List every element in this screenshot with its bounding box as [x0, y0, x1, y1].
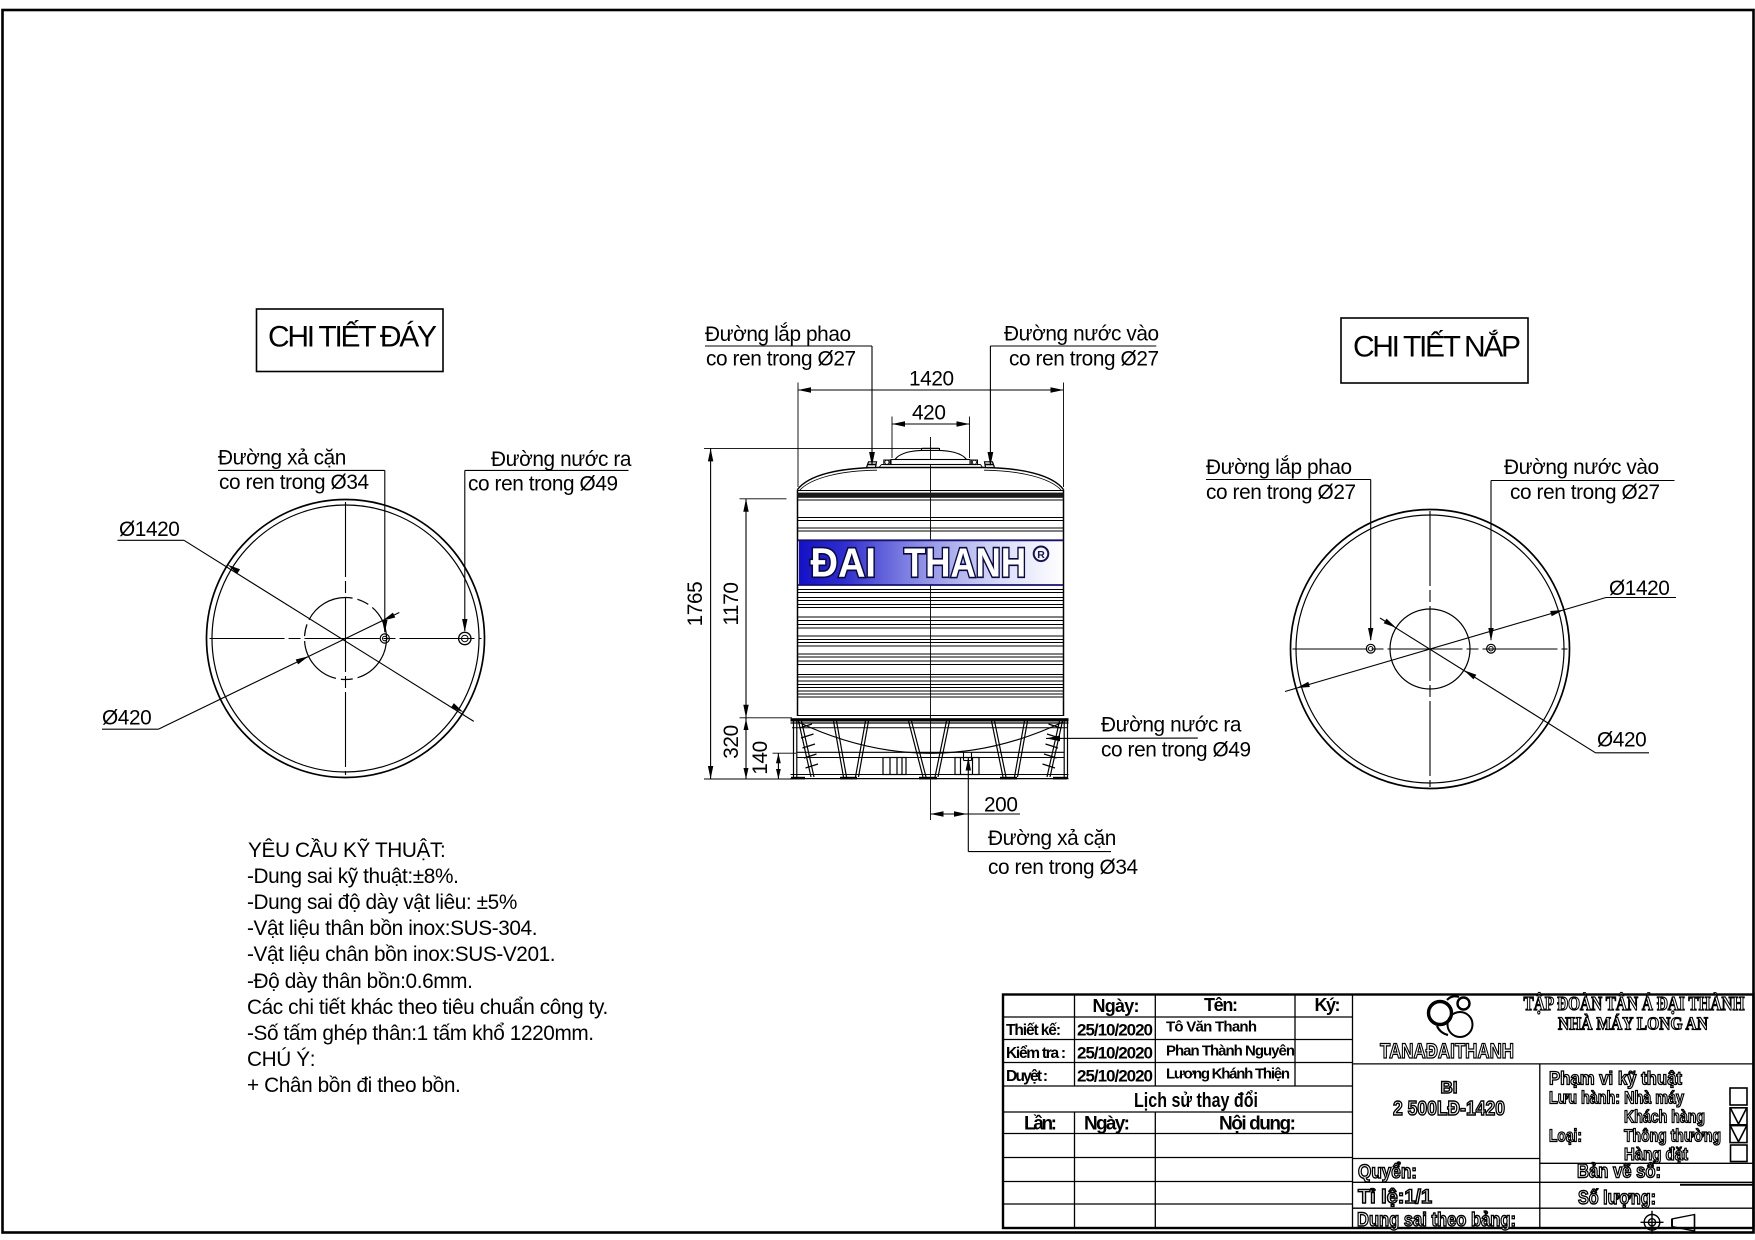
svg-text:-Vật liệu thân bồn inox:SUS-30: -Vật liệu thân bồn inox:SUS-304. — [247, 917, 537, 940]
svg-text:Phạm vi kỹ thuật: Phạm vi kỹ thuật — [1549, 1068, 1682, 1089]
svg-text:Đường nước vào: Đường nước vào — [1504, 456, 1659, 479]
svg-text:Đường nước vào: Đường nước vào — [1004, 323, 1159, 346]
svg-text:TẬP ĐOÀN TÂN Á ĐẠI THÀNH: TẬP ĐOÀN TÂN Á ĐẠI THÀNH — [1524, 993, 1745, 1015]
svg-text:Nội dung:: Nội dung: — [1219, 1114, 1296, 1135]
svg-text:320: 320 — [720, 725, 743, 759]
svg-text:Phan Thành Nguyên: Phan Thành Nguyên — [1166, 1043, 1295, 1060]
svg-text:CHI TIẾT ĐÁY: CHI TIẾT ĐÁY — [268, 320, 437, 354]
svg-text:CHI TIẾT NẮP: CHI TIẾT NẮP — [1353, 330, 1521, 364]
svg-text:Số lượng:: Số lượng: — [1578, 1187, 1656, 1209]
svg-text:-Số tấm ghép thân:1 tấm khổ 12: -Số tấm ghép thân:1 tấm khổ 1220mm. — [247, 1022, 594, 1045]
svg-text:YÊU CẦU KỸ THUẬT:: YÊU CẦU KỸ THUẬT: — [248, 838, 445, 862]
svg-text:Đường nước ra: Đường nước ra — [491, 448, 632, 471]
svg-text:THANH: THANH — [904, 540, 1026, 586]
svg-text:Ngày:: Ngày: — [1084, 1114, 1130, 1135]
svg-text:2 500LĐ-1420: 2 500LĐ-1420 — [1393, 1098, 1505, 1120]
svg-text:1420: 1420 — [909, 368, 954, 391]
svg-text:25/10/2020: 25/10/2020 — [1077, 1021, 1153, 1040]
svg-text:Ø420: Ø420 — [1597, 729, 1646, 752]
svg-text:Các chi tiết khác theo tiêu ch: Các chi tiết khác theo tiêu chuẩn công t… — [247, 996, 608, 1019]
svg-text:-Vật liệu chân bồn inox:SUS-V2: -Vật liệu chân bồn inox:SUS-V201. — [247, 943, 555, 966]
svg-text:Duyệt :: Duyệt : — [1006, 1068, 1048, 1085]
svg-text:140: 140 — [749, 741, 772, 775]
svg-text:Tỉ lệ:1/1: Tỉ lệ:1/1 — [1358, 1187, 1432, 1208]
svg-text:-Độ dày thân bồn:0.6mm.: -Độ dày thân bồn:0.6mm. — [247, 970, 472, 993]
svg-text:co ren trong Ø27: co ren trong Ø27 — [1206, 481, 1356, 504]
svg-text:CHÚ Ý:: CHÚ Ý: — [247, 1048, 315, 1071]
svg-text:Quyển:: Quyển: — [1358, 1161, 1417, 1183]
svg-text:Bản vẽ số:: Bản vẽ số: — [1577, 1161, 1661, 1183]
svg-text:Đường nước ra: Đường nước ra — [1101, 714, 1242, 737]
svg-text:Đường lắp phao: Đường lắp phao — [705, 323, 851, 346]
svg-text:-Dung sai kỹ thuật:±8%.: -Dung sai kỹ thuật:±8%. — [247, 865, 458, 888]
svg-text:Ø1420: Ø1420 — [119, 518, 179, 541]
svg-text:Ký:: Ký: — [1315, 995, 1341, 1015]
svg-text:R: R — [1037, 549, 1045, 561]
svg-text:co ren trong Ø49: co ren trong Ø49 — [1101, 739, 1251, 762]
svg-text:co ren trong Ø34: co ren trong Ø34 — [988, 856, 1138, 879]
svg-text:Ø1420: Ø1420 — [1609, 577, 1669, 600]
svg-text:200: 200 — [984, 794, 1018, 817]
svg-text:Dung sai theo bảng:: Dung sai theo bảng: — [1357, 1209, 1516, 1231]
svg-text:Thiết kế:: Thiết kế: — [1006, 1022, 1061, 1039]
svg-text:co ren trong Ø49: co ren trong Ø49 — [468, 473, 618, 496]
svg-text:TANAĐAITHANH: TANAĐAITHANH — [1380, 1039, 1514, 1063]
svg-text:25/10/2020: 25/10/2020 — [1077, 1044, 1153, 1063]
svg-text:co ren trong Ø27: co ren trong Ø27 — [706, 348, 856, 371]
svg-text:Đường xả cặn: Đường xả cặn — [988, 827, 1116, 850]
svg-text:Tô Văn Thanh: Tô Văn Thanh — [1166, 1019, 1257, 1036]
svg-text:Ngày:: Ngày: — [1093, 996, 1140, 1016]
svg-text:co ren trong Ø27: co ren trong Ø27 — [1009, 348, 1159, 371]
svg-text:1765: 1765 — [684, 582, 707, 627]
svg-text:Ø420: Ø420 — [102, 707, 151, 730]
svg-text:420: 420 — [912, 402, 946, 425]
svg-text:Lưu hành: Nhà máy: Lưu hành: Nhà máy — [1549, 1088, 1684, 1108]
svg-text:NHÀ MÁY LONG AN: NHÀ MÁY LONG AN — [1558, 1013, 1708, 1034]
svg-text:Tên:: Tên: — [1204, 995, 1238, 1015]
svg-text:Lần:: Lần: — [1024, 1114, 1057, 1135]
svg-text:Đường xả cặn: Đường xả cặn — [218, 447, 346, 470]
svg-text:Đường lắp phao: Đường lắp phao — [1206, 456, 1352, 479]
svg-text:-Dung sai độ dày vật liêu: ±5%: -Dung sai độ dày vật liêu: ±5% — [247, 891, 517, 914]
svg-text:BI: BI — [1441, 1078, 1458, 1097]
svg-text:Kiểm tra :: Kiểm tra : — [1006, 1045, 1066, 1062]
svg-text:co ren trong Ø27: co ren trong Ø27 — [1510, 481, 1660, 504]
svg-text:25/10/2020: 25/10/2020 — [1077, 1067, 1153, 1086]
svg-text:Lương Khánh Thiện: Lương Khánh Thiện — [1166, 1066, 1290, 1083]
svg-text:Loại:: Loại: — [1549, 1126, 1582, 1146]
svg-text:Khách hàng: Khách hàng — [1624, 1107, 1705, 1127]
svg-text:ĐAI: ĐAI — [811, 540, 877, 586]
svg-text:Thông thường: Thông thường — [1624, 1126, 1721, 1146]
svg-text:1170: 1170 — [720, 582, 743, 625]
svg-text:+ Chân bồn đi theo bồn.: + Chân bồn đi theo bồn. — [247, 1074, 460, 1097]
svg-text:co ren trong Ø34: co ren trong Ø34 — [219, 471, 369, 494]
svg-text:Lịch sử thay đổi: Lịch sử thay đổi — [1134, 1090, 1258, 1112]
